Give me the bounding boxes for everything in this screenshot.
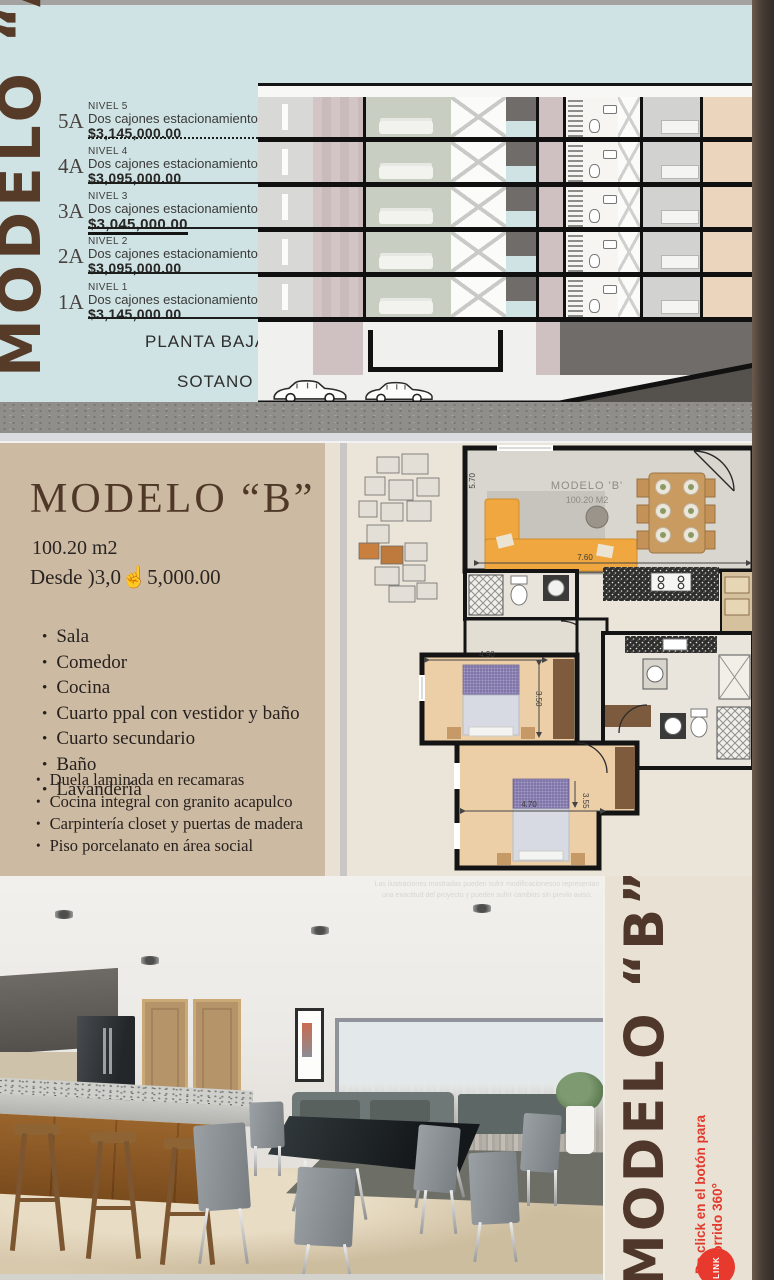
nightstand [521, 727, 535, 739]
dim-label-bed2-w: 4.70 [521, 800, 537, 809]
bedroom-1: 4.90 3.50 [419, 650, 577, 743]
sofa-silhouette [379, 211, 433, 224]
core-wall [536, 232, 566, 272]
shower [717, 707, 750, 759]
bathroom-cell [563, 277, 621, 317]
floor-level-4 [258, 142, 755, 187]
ceiling-light [308, 926, 332, 935]
dim-label-living-h: 5.70 [468, 472, 477, 488]
nightstand [497, 853, 511, 865]
closet-shaft [618, 187, 640, 227]
bathroom-cell [563, 232, 621, 272]
level-code: 2A [58, 244, 84, 269]
bedroom-cell [640, 277, 703, 317]
mauve-column [313, 187, 363, 227]
recorrido-360-link-button[interactable]: LINK [697, 1248, 735, 1280]
model-b-sidebar: MODELO “B” Da click en el botón para rec… [603, 876, 754, 1280]
level-price: $3,045,000.00 [88, 217, 188, 235]
sofa-silhouette [379, 256, 433, 269]
living-room-cell [363, 277, 454, 317]
bed-pillow [519, 851, 563, 860]
sofa-silhouette [379, 166, 433, 179]
model-a-section: MODELO “A” 5A NIVEL 5 Dos cajones estaci… [0, 5, 752, 402]
living-dining-room: 7.60 5.70 MODELO 'B' 100.20 M2 [465, 445, 753, 575]
sink-icon [603, 195, 617, 204]
link-button-label: LINK [711, 1256, 720, 1279]
model-b-finishes-list: Duela laminada en recamaras Cocina integ… [36, 769, 303, 857]
finish-item: Cocina integral con granito acapulco [36, 791, 303, 813]
core-wall [536, 97, 566, 137]
bar-stool [12, 1124, 64, 1256]
mauve-column [313, 232, 363, 272]
stair-shaft [451, 142, 506, 182]
bathroom-cell [563, 187, 621, 227]
living-room-cell [363, 187, 454, 227]
mauve-column [313, 142, 363, 182]
ceiling-light [52, 910, 76, 919]
level-row-1a: 1A NIVEL 1 Dos cajones estacionamiento $… [58, 282, 288, 322]
toilet-icon [589, 119, 600, 133]
sink-icon [603, 285, 617, 294]
building-roof [258, 83, 755, 97]
floor-level-3 [258, 187, 755, 232]
floor-level-2 [258, 232, 755, 277]
finish-item: Duela laminada en recamaras [36, 769, 303, 791]
living-room-cell [363, 232, 454, 272]
toilet-icon [589, 209, 600, 223]
disclaimer-line2: una exactitud del proyecto y pueden sufr… [368, 891, 606, 902]
nightstand [447, 727, 461, 739]
living-room-cell [363, 97, 454, 137]
nightstand [571, 853, 585, 865]
bed-silhouette [661, 210, 699, 224]
bathroom-cell [563, 142, 621, 182]
bed-pillow [469, 727, 513, 736]
model-b-vertical-title: MODELO “B” [613, 876, 676, 1280]
facade-column [258, 232, 313, 272]
street-ground-strip [0, 402, 752, 433]
facade-column [258, 142, 313, 182]
bathroom-cell [563, 97, 621, 137]
right-facade [700, 232, 758, 272]
right-facade [700, 142, 758, 182]
level-code: 4A [58, 154, 84, 179]
sofa-silhouette [379, 121, 433, 134]
sink-icon [603, 150, 617, 159]
brochure-page: MODELO “A” 5A NIVEL 5 Dos cajones estaci… [0, 0, 774, 1280]
finish-item: Carpintería closet y puertas de madera [36, 813, 303, 835]
floor-level-5 [258, 97, 755, 142]
model-b-title: MODELO “B” [30, 475, 315, 523]
bedroom-cell [640, 97, 703, 137]
balcony-block [506, 232, 536, 256]
level-line-4a [88, 182, 258, 184]
level-line-2a [88, 272, 258, 274]
feature-item: Cuarto secundario [42, 727, 300, 753]
dim-label-living-w: 7.60 [577, 553, 593, 562]
level-row-2a: 2A NIVEL 2 Dos cajones estacionamiento $… [58, 236, 288, 276]
ceiling-light [470, 904, 494, 913]
facade-column [258, 187, 313, 227]
bed-silhouette [661, 120, 699, 134]
balcony-block [506, 187, 536, 211]
closet [615, 747, 635, 809]
core-wall [536, 187, 566, 227]
bed-silhouette [661, 165, 699, 179]
facade-column [258, 97, 313, 137]
level-row-5a: 5A NIVEL 5 Dos cajones estacionamiento $… [58, 101, 288, 141]
bedroom-2: 4.70 3.55 [454, 743, 637, 868]
bottom-strip [0, 1274, 612, 1280]
feature-item: Cocina [42, 676, 300, 702]
facade-column [258, 277, 313, 317]
closet-shaft [618, 277, 640, 317]
closet-shaft [618, 97, 640, 137]
living-room-cell [363, 142, 454, 182]
right-frame-bar [752, 0, 774, 1280]
bed-blanket [463, 665, 519, 695]
interior-render: Las ilustraciones mostradas pueden sufri… [0, 876, 612, 1280]
sink-icon [665, 718, 682, 735]
section-divider [0, 433, 752, 443]
model-b-area: 100.20 m2 [32, 537, 118, 560]
bed-silhouette [661, 300, 699, 314]
sink-icon [663, 639, 687, 650]
bedroom-cell [640, 187, 703, 227]
right-facade [700, 277, 758, 317]
closet [553, 659, 574, 739]
panel-gap [325, 443, 347, 876]
plant-pot [566, 1106, 594, 1154]
finish-item: Piso porcelanato en área social [36, 835, 303, 857]
wall-art [295, 1008, 324, 1082]
recorrido-360-cta: Da click en el botón para recorrido 360° [693, 1056, 727, 1274]
bed-silhouette [661, 255, 699, 269]
stove [651, 573, 691, 591]
closet-shaft [618, 142, 640, 182]
kitchen [603, 567, 753, 637]
plan-title: MODELO 'B' [551, 480, 623, 492]
toilet-tank [691, 709, 707, 717]
render-disclaimer: Las ilustraciones mostradas pueden sufri… [368, 880, 606, 901]
feature-item: Cuarto ppal con vestidor y baño [42, 702, 300, 728]
toilet-icon [511, 585, 527, 605]
balcony-block [506, 277, 536, 301]
core-wall [536, 277, 566, 317]
level-line-3a [88, 227, 258, 229]
bedroom-cell [640, 232, 703, 272]
stair-shaft [451, 97, 506, 137]
toilet-icon [589, 164, 600, 178]
sotano-label: SOTANO [177, 372, 254, 392]
level-code: 1A [58, 290, 84, 315]
closet [605, 705, 651, 727]
mauve-column [313, 277, 363, 317]
toilet-icon [589, 254, 600, 268]
mauve-column [313, 97, 363, 137]
ceiling-light [138, 956, 162, 965]
balcony-block [506, 97, 536, 121]
level-code: 3A [58, 199, 84, 224]
stair-shaft [451, 232, 506, 272]
feature-item: Sala [42, 625, 300, 651]
core-wall [536, 142, 566, 182]
shower [469, 575, 503, 615]
bar-stool [88, 1132, 140, 1264]
stair-shaft [451, 187, 506, 227]
toilet-icon [691, 717, 707, 737]
toilet-icon [589, 299, 600, 313]
model-b-floor-plan: 7.60 5.70 MODELO 'B' 100.20 M2 [347, 443, 757, 876]
right-facade [700, 187, 758, 227]
toilet-tank [511, 576, 527, 584]
sink-icon [603, 105, 617, 114]
floor-level-1 [258, 277, 755, 322]
key-plan [359, 454, 439, 602]
closet-shaft [618, 232, 640, 272]
sofa-silhouette [379, 301, 433, 314]
feature-item: Comedor [42, 651, 300, 677]
balcony-block [506, 142, 536, 166]
ground-slope [258, 353, 755, 407]
level-code: 5A [58, 109, 84, 134]
dim-label-bed2-h: 3.55 [581, 793, 590, 809]
bedroom-cell [640, 142, 703, 182]
right-facade [700, 97, 758, 137]
sink-icon [548, 580, 564, 596]
level-line-1a [88, 317, 258, 319]
ottoman [586, 506, 608, 528]
level-row-4a: 4A NIVEL 4 Dos cajones estacionamiento $… [58, 146, 288, 186]
model-a-vertical-title: MODELO “A” [0, 0, 54, 377]
stair-shaft [451, 277, 506, 317]
model-b-info-panel: MODELO “B” 100.20 m2 Desde )3,0☝5,000.00… [0, 443, 325, 876]
dining-set [637, 473, 715, 553]
sink-icon [647, 666, 663, 682]
building-floors [258, 97, 755, 322]
dim-label-bed1-h: 3.50 [534, 691, 543, 707]
disclaimer-line1: Las ilustraciones mostradas pueden sufri… [368, 880, 606, 891]
sink-icon [603, 240, 617, 249]
plan-subtitle: 100.20 M2 [566, 495, 609, 505]
planta-baja-label: PLANTA BAJA [145, 332, 267, 352]
dim-label-bed1-w: 4.90 [479, 650, 495, 659]
model-b-price: Desde )3,0☝5,000.00 [30, 565, 221, 590]
